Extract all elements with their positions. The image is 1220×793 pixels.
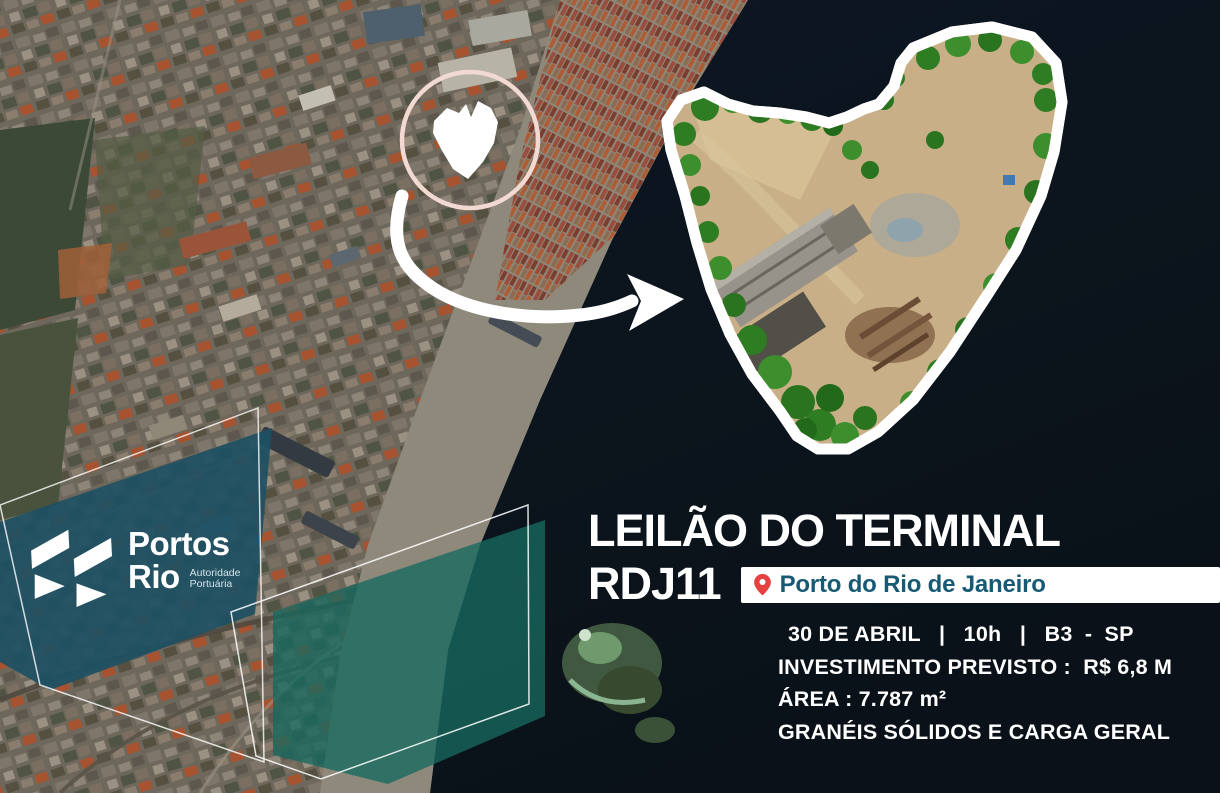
portos-rio-logo-icon [30,527,114,607]
headline-line2: RDJ11 [588,562,721,606]
detail-cargo: GRANÉIS SÓLIDOS E CARGA GERAL [778,716,1172,749]
brand-subtitle: Autoridade Portuária [190,568,241,590]
detail-date: 30 DE ABRIL | 10h | B3 - SP [778,618,1172,651]
detail-investment: INVESTIMENTO PREVISTO : R$ 6,8 M [778,651,1172,684]
headline-line1: LEILÃO DO TERMINAL [588,506,1220,556]
location-label: Porto do Rio de Janeiro [780,571,1046,599]
location-pin-icon [754,574,771,596]
brand-name-line1: Portos [128,527,240,561]
auction-details: 30 DE ABRIL | 10h | B3 - SP INVESTIMENTO… [778,618,1172,748]
portos-rio-logo: Portos Rio Autoridade Portuária [30,527,240,607]
auction-banner: Portos Rio Autoridade Portuária LEILÃO D… [0,0,1220,793]
brand-text: Portos Rio Autoridade Portuária [128,527,240,593]
brand-name-line2: Rio [128,561,180,593]
detail-area: ÁREA : 7.787 m² [778,683,1172,716]
location-pill: Porto do Rio de Janeiro [741,567,1220,603]
headline-block: LEILÃO DO TERMINAL RDJ11 Porto do Rio de… [588,506,1220,606]
